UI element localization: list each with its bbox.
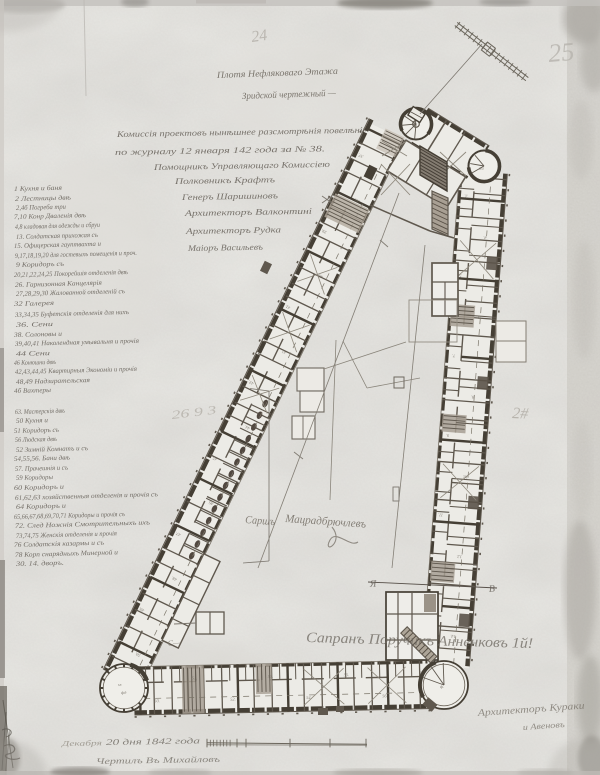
svg-text:36. Сени: 36. Сени xyxy=(14,321,54,329)
svg-text:1 Кухня и баня: 1 Кухня и баня xyxy=(14,185,62,193)
svg-text:54,55,56. Бани двѣ: 54,55,56. Бани двѣ xyxy=(14,455,71,463)
svg-text:12.: 12. xyxy=(456,554,462,559)
svg-text:53.: 53. xyxy=(268,674,274,679)
svg-text:50.: 50. xyxy=(154,698,160,703)
svg-text:51.: 51. xyxy=(192,675,198,680)
svg-text:32 Галерея: 32 Галерея xyxy=(13,300,54,308)
svg-text:51 Коридоръ съ: 51 Коридоръ съ xyxy=(14,427,60,435)
svg-text:Саршъ: Саршъ xyxy=(245,514,276,528)
svg-text:64 Коридоръ и: 64 Коридоръ и xyxy=(16,503,67,511)
svg-text:ф.: ф. xyxy=(440,684,444,689)
svg-text:57. Прачешнія и съ: 57. Прачешнія и съ xyxy=(15,465,69,473)
svg-text:Полковникъ Крафтъ: Полковникъ Крафтъ xyxy=(174,174,276,186)
svg-text:44 Сени: 44 Сени xyxy=(16,350,51,358)
svg-text:25: 25 xyxy=(547,37,575,68)
svg-text:54.: 54. xyxy=(306,695,312,700)
svg-text:2 Лестницы двѣ: 2 Лестницы двѣ xyxy=(15,195,72,203)
svg-text:9 Коридоръ съ: 9 Коридоръ съ xyxy=(16,261,65,269)
svg-text:38. Солоновы и: 38. Солоновы и xyxy=(13,331,63,339)
svg-text:4.: 4. xyxy=(483,235,487,240)
svg-text:56.: 56. xyxy=(382,693,388,698)
svg-text:59 Коридоры: 59 Коридоры xyxy=(16,474,54,482)
svg-text:24: 24 xyxy=(250,27,268,46)
svg-text:8.: 8. xyxy=(471,395,475,400)
svg-text:3.: 3. xyxy=(464,194,468,199)
svg-text:10.: 10. xyxy=(462,474,468,479)
svg-text:30. 14. дворъ.: 30. 14. дворъ. xyxy=(15,560,65,568)
svg-text:56 Людская двѣ: 56 Людская двѣ xyxy=(15,436,58,444)
svg-text:ѕɜ: ѕɜ xyxy=(118,682,122,687)
svg-text:фд: фд xyxy=(121,690,127,695)
svg-text:39.: 39. xyxy=(479,166,485,171)
svg-text:Генеръ Шаришиновъ: Генеръ Шаришиновъ xyxy=(181,190,279,202)
svg-text:9.: 9. xyxy=(446,433,450,438)
svg-text:Архитекторъ Рудка: Архитекторъ Рудка xyxy=(185,224,281,236)
svg-text:7.: 7. xyxy=(452,353,456,358)
svg-text:2,4б Погреба три: 2,4б Погреба три xyxy=(16,204,67,212)
svg-text:20 дня 1842 года: 20 дня 1842 года xyxy=(106,735,200,747)
svg-text:50 Кухня и: 50 Кухня и xyxy=(16,417,49,425)
svg-text:Маіоръ Васильевъ: Маіоръ Васильевъ xyxy=(187,242,264,253)
svg-text:60 Коридоръ и: 60 Коридоръ и xyxy=(14,484,65,492)
svg-text:2#: 2# xyxy=(512,405,530,423)
svg-text:46 Конюшни двѣ: 46 Конюшни двѣ xyxy=(14,359,57,367)
svg-text:52.: 52. xyxy=(230,697,236,702)
svg-text:63. Мастерскія двѣ: 63. Мастерскія двѣ xyxy=(15,408,66,416)
svg-text:В: В xyxy=(488,584,495,595)
svg-text:Декабря: Декабря xyxy=(60,738,102,748)
svg-text:55.: 55. xyxy=(344,672,350,677)
svg-text:С—: С— xyxy=(167,638,181,648)
svg-text:11.: 11. xyxy=(438,512,444,517)
svg-text:6.: 6. xyxy=(477,315,481,320)
svg-text:4б Вахтеры: 4б Вахтеры xyxy=(14,387,52,395)
